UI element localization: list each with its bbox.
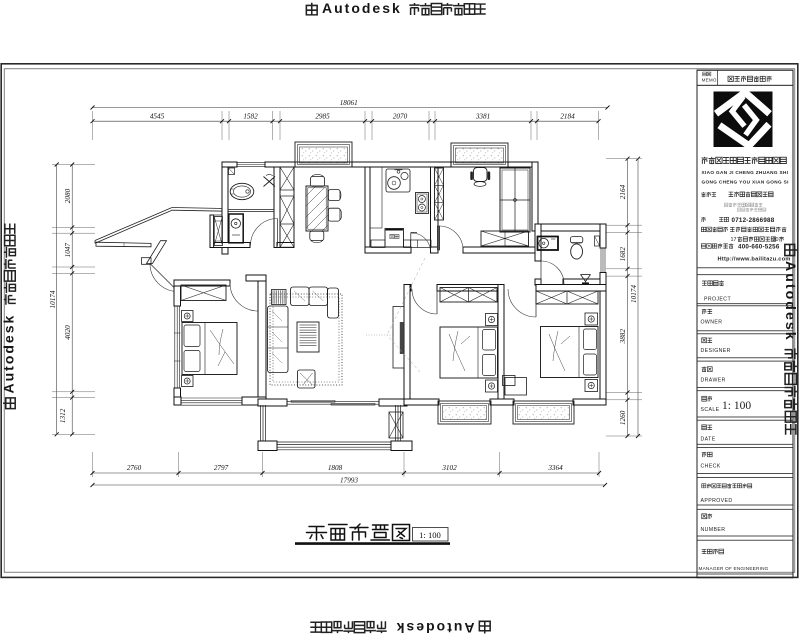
svg-text:DESIGNER: DESIGNER (701, 348, 731, 354)
svg-text:Autodesk: Autodesk (322, 0, 402, 16)
svg-text:APPROVED: APPROVED (701, 498, 733, 504)
svg-text:20: 20 (773, 237, 779, 243)
svg-text:3364: 3364 (547, 464, 563, 472)
svg-text:XIAO GAN JI CHENG ZHUANG SHI: XIAO GAN JI CHENG ZHUANG SHI (702, 170, 789, 175)
svg-text:Http://www.bailitazu.com: Http://www.bailitazu.com (718, 257, 791, 263)
svg-text:1682: 1682 (619, 247, 627, 262)
svg-text:CHECK: CHECK (701, 464, 721, 470)
svg-text:2184: 2184 (560, 113, 575, 121)
svg-text:GONG CHENG YOU XIAN GONG SI: GONG CHENG YOU XIAN GONG SI (702, 180, 789, 185)
svg-text:SCALE: SCALE (701, 407, 720, 413)
svg-text:17: 17 (731, 237, 737, 243)
svg-text:1582: 1582 (243, 113, 258, 121)
svg-text:3102: 3102 (441, 464, 457, 472)
svg-text:PROJECT: PROJECT (704, 297, 731, 303)
svg-text:Autodesk: Autodesk (1, 314, 17, 394)
svg-text:10174: 10174 (49, 290, 57, 308)
svg-text:OWNER: OWNER (701, 320, 723, 326)
svg-text:2080: 2080 (64, 188, 72, 203)
svg-text:2797: 2797 (214, 464, 229, 472)
svg-text:2070: 2070 (393, 113, 408, 121)
svg-text:1808: 1808 (328, 464, 343, 472)
svg-text:DRAWER: DRAWER (701, 378, 726, 384)
svg-text:1047: 1047 (64, 243, 72, 258)
svg-text:1: 100: 1: 100 (722, 400, 751, 412)
svg-text:NUMBER: NUMBER (701, 527, 726, 533)
svg-text:4020: 4020 (64, 325, 72, 340)
svg-text:0712-2866988: 0712-2866988 (732, 217, 775, 224)
svg-text:MEMO: MEMO (702, 77, 717, 82)
svg-text:3381: 3381 (475, 113, 490, 121)
svg-text:18061: 18061 (340, 99, 358, 107)
svg-text:1: 100: 1: 100 (419, 530, 441, 540)
svg-text:Autodesk: Autodesk (782, 261, 798, 342)
svg-text:2985: 2985 (315, 113, 330, 121)
svg-text:17993: 17993 (340, 476, 358, 484)
svg-text:MANAGER OF ENGINEERING: MANAGER OF ENGINEERING (699, 566, 769, 571)
svg-text:DATE: DATE (701, 436, 716, 442)
svg-text:3882: 3882 (619, 329, 627, 345)
svg-text:1312: 1312 (59, 408, 67, 423)
svg-text:400-660-5256: 400-660-5256 (738, 243, 780, 250)
svg-text:2164: 2164 (619, 184, 627, 199)
svg-text:10174: 10174 (630, 285, 638, 303)
svg-text:2760: 2760 (127, 464, 142, 472)
svg-text:Autodesk: Autodesk (395, 620, 475, 636)
svg-text:4545: 4545 (150, 113, 165, 121)
svg-text:1260: 1260 (619, 410, 627, 425)
